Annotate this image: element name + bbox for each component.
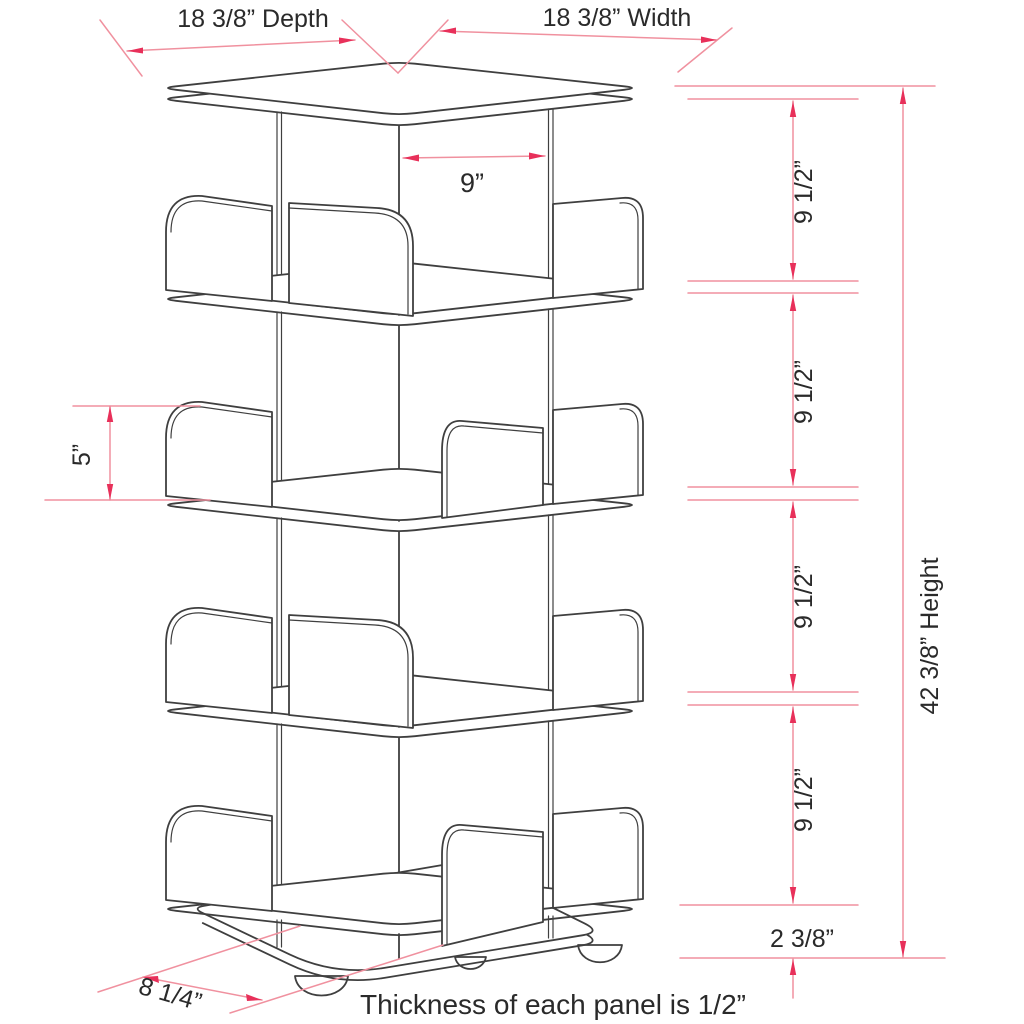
caster-foot <box>578 945 622 962</box>
divider <box>553 404 643 504</box>
tier1-dividers <box>166 196 643 316</box>
panel-thickness-note: Thickness of each panel is 1/2” <box>360 989 746 1020</box>
shelf-spacing-label-1: 9 1/2” <box>790 160 818 224</box>
arrowhead <box>440 28 456 35</box>
overall-height-label: 42 3/8” Height <box>916 557 944 714</box>
base-offset-label: 8 1/4” <box>136 972 205 1017</box>
overall-height-dimension <box>900 88 906 957</box>
shelf-spacing-label-2: 9 1/2” <box>790 360 818 424</box>
arrowhead <box>127 48 143 54</box>
divider <box>442 421 543 518</box>
divider <box>166 196 272 301</box>
arrowhead <box>529 153 545 160</box>
furniture-dimension-diagram: 18 3/8” Depth 18 3/8” Width 9” 9 1/2” 9 … <box>0 0 1024 1024</box>
divider <box>289 615 413 728</box>
divider <box>166 402 272 507</box>
depth-dimension-label: 18 3/8” Depth <box>177 5 329 33</box>
base-clearance-dimension <box>790 959 796 998</box>
shelf-spacing-label-4: 9 1/2” <box>790 768 818 832</box>
compartment-width-label: 9” <box>460 168 484 198</box>
width-dimension-label: 18 3/8” Width <box>543 4 692 32</box>
divider <box>289 203 413 316</box>
divider <box>553 198 643 298</box>
divider <box>166 806 272 911</box>
tier3-dividers <box>166 608 643 728</box>
divider <box>553 610 643 710</box>
divider <box>166 608 272 713</box>
divider <box>553 808 643 908</box>
divider-height-label: 5” <box>68 444 96 466</box>
compartment-width-dimension <box>403 153 545 162</box>
bookcase-drawing <box>166 63 643 996</box>
shelf-spacing-label-3: 9 1/2” <box>790 565 818 629</box>
arrowhead <box>403 155 419 162</box>
base-clearance-label: 2 3/8” <box>770 925 834 953</box>
